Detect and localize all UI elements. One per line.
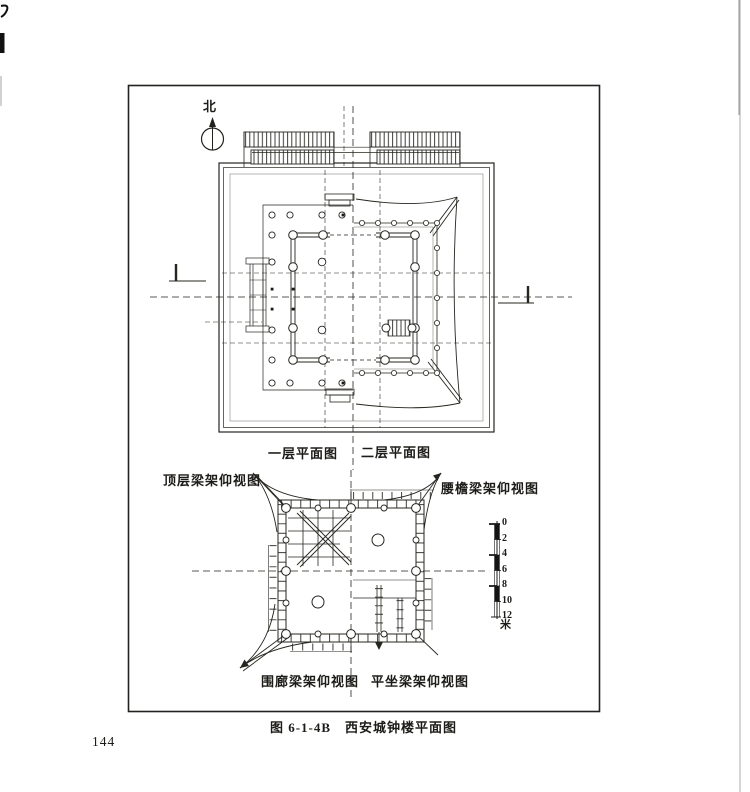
figure-caption-number: 图 6-1-4B [270,720,331,735]
north-arrow-icon [202,117,224,150]
scan-artifacts [0,0,740,792]
floor-plan-drawing [150,106,572,470]
book-page: 北 一层平面图 二层平面图 顶层梁架仰视图 腰檐梁架仰视图 围廊梁架仰视图 平坐… [0,0,750,792]
first-floor-plan-label: 一层平面图 [262,447,344,460]
scale-tick-2: 2 [502,534,507,544]
figure-frame [129,86,600,712]
scale-tick-0: 0 [502,518,507,528]
waist-eave-frame-label: 腰檐梁架仰视图 [441,482,539,495]
beam-frame-drawing [192,470,487,697]
interior-stair [382,320,416,336]
scale-bar [489,521,501,619]
section-marker-right [498,286,534,303]
eave-corner-tr [384,473,441,530]
scale-tick-8: 8 [502,580,507,590]
corridor-frame-label: 围廊梁架仰视图 [261,675,359,688]
figure-caption: 图 6-1-4B西安城钟楼平面图 [128,717,599,736]
section-marker-left [169,264,206,281]
first-floor-plan [246,205,353,390]
pingzuo-frame-label: 平坐梁架仰视图 [371,675,469,688]
axis-lines [150,106,572,470]
figure-caption-title: 西安城钟楼平面图 [345,720,457,735]
scale-tick-6: 6 [502,565,507,575]
page-number: 144 [92,734,115,750]
north-label: 北 [203,100,217,113]
center-column-tr [372,534,384,546]
west-porch [246,258,269,332]
top-roof-frame-label: 顶层梁架仰视图 [163,474,261,487]
scale-unit-label: 米 [500,620,512,631]
stairs-north [244,132,460,167]
scale-tick-10: 10 [502,596,512,606]
scale-tick-4: 4 [502,549,507,559]
center-landings [325,194,354,402]
roof-lattice-tl [288,510,351,567]
second-floor-plan [353,197,462,408]
second-floor-plan-label: 二层平面图 [354,446,438,459]
center-column-bl [312,596,324,608]
